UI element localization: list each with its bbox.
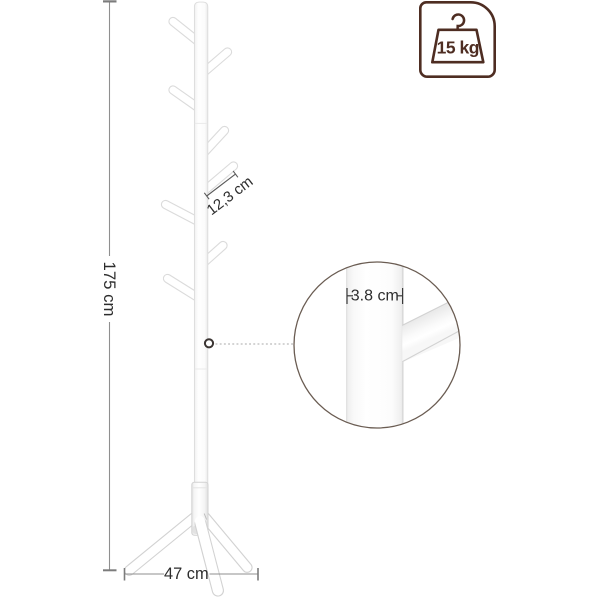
- svg-text:47 cm: 47 cm: [164, 565, 209, 583]
- svg-text:3.8 cm: 3.8 cm: [351, 287, 399, 304]
- svg-text:15 kg: 15 kg: [437, 38, 479, 58]
- svg-text:175 cm: 175 cm: [100, 261, 119, 316]
